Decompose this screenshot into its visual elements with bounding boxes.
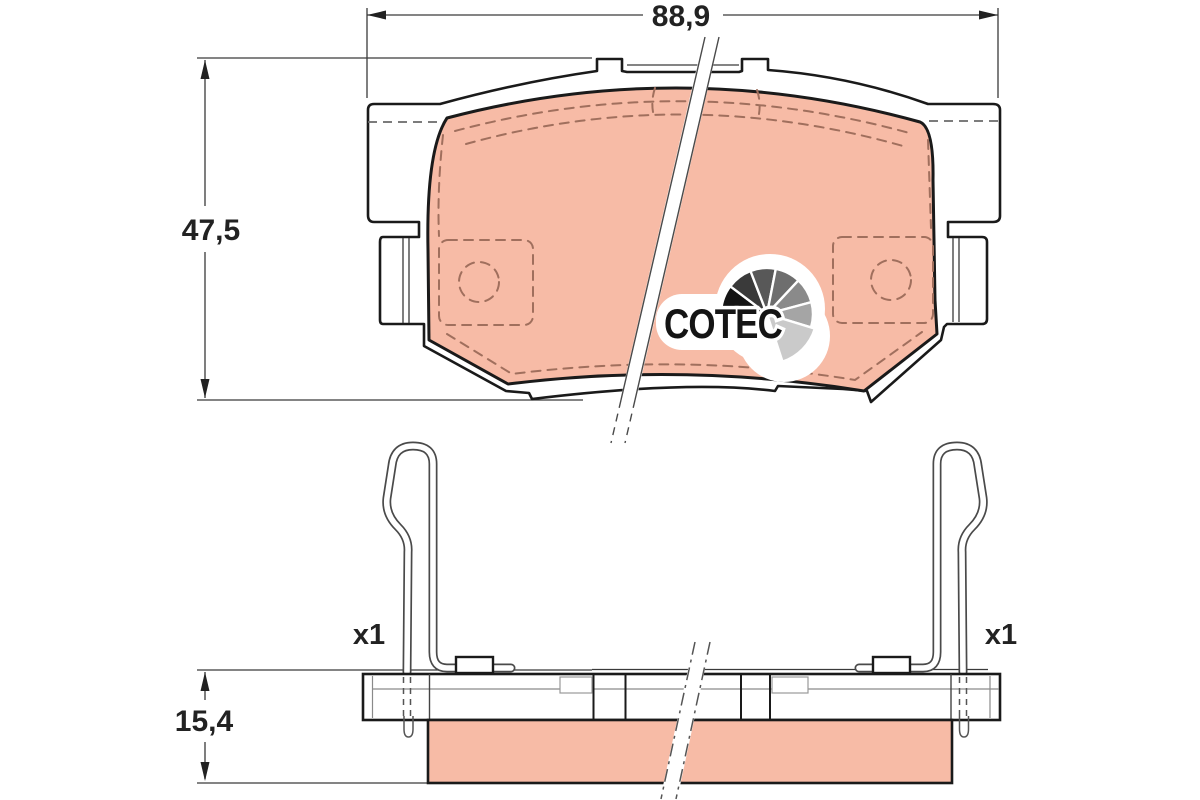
logo-brand-text: COTEC (664, 300, 783, 347)
height-dimension-label: 47,5 (182, 214, 240, 247)
arrowhead-down (201, 762, 210, 781)
arrowhead-down (201, 379, 210, 398)
right-spring-clip (859, 446, 983, 672)
clip-quantity-label-right: x1 (985, 619, 1017, 651)
clip-bump-left (456, 657, 493, 673)
top-view-pad: COTEC (368, 36, 1000, 444)
clip-bump-right (873, 657, 910, 673)
arrowhead-left (367, 11, 386, 20)
thickness-dimension-label: 15,4 (175, 705, 234, 738)
left-spring-clip (387, 446, 511, 672)
technical-drawing-page: 88,9 47,5 (0, 0, 1200, 800)
side-view-pad: x1 x1 (353, 446, 1017, 800)
arrowhead-up (201, 60, 210, 79)
arrowhead-up (201, 672, 210, 691)
width-dimension-label: 88,9 (652, 0, 710, 33)
brake-pad-technical-drawing: 88,9 47,5 (0, 0, 1200, 800)
arrowhead-right (979, 11, 998, 20)
clip-quantity-label-left: x1 (353, 619, 385, 651)
